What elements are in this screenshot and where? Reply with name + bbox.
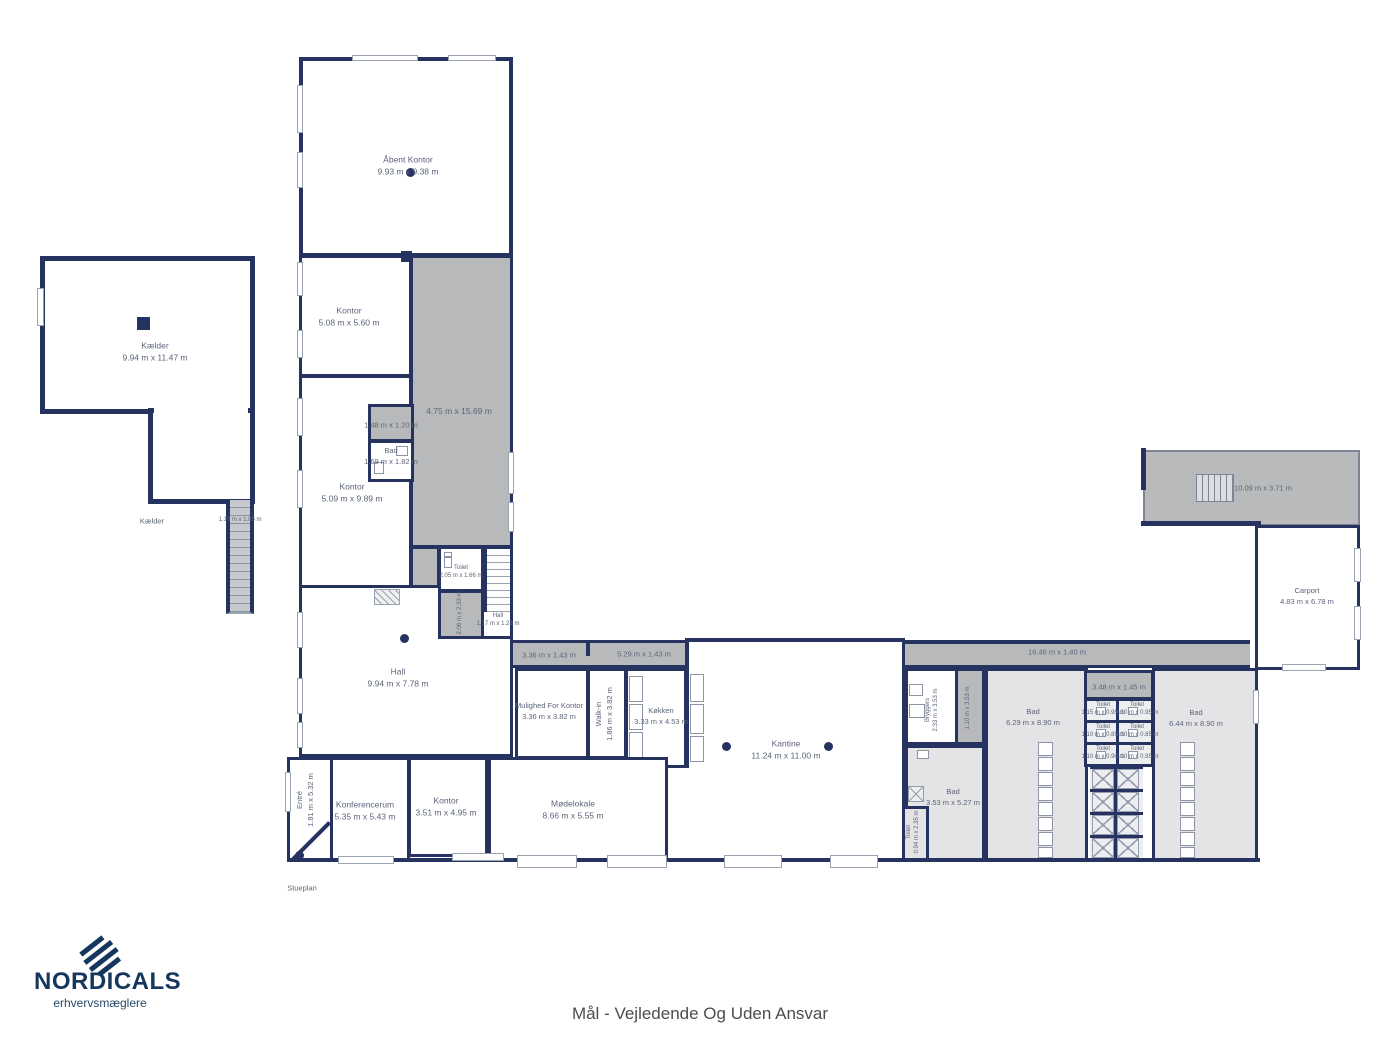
shower-icon	[1180, 757, 1195, 771]
shower-icon	[1180, 832, 1195, 846]
label-bath-small: Bad1.69 m x 1.82 m	[364, 446, 418, 468]
shower-stall-icon	[1092, 792, 1114, 812]
wall-segment	[438, 636, 513, 639]
room-name: Bad	[364, 446, 418, 457]
room-dims: 1.10 m x 0.85 m	[1115, 732, 1158, 740]
window	[452, 853, 504, 861]
label-conference: Konferencerum5.35 m x 5.43 m	[335, 799, 396, 824]
room-dims: 3.36 m x 3.82 m	[515, 712, 583, 723]
window	[1253, 690, 1259, 724]
room-dims: 9.94 m x 11.47 m	[122, 352, 187, 364]
room-dims: 3.51 m x 4.95 m	[416, 807, 477, 819]
label-corridor2: 5.29 m x 1.43 m	[617, 650, 671, 661]
shower-icon	[1038, 787, 1053, 801]
window	[297, 152, 303, 188]
label-corridor3: 16.46 m x 1.40 m	[1028, 648, 1086, 659]
shower-icon	[1038, 817, 1053, 831]
room-bath1	[985, 668, 1088, 862]
room-name: Kontor	[416, 795, 477, 807]
shower-icon	[1038, 847, 1053, 858]
window	[297, 612, 303, 648]
label-entry: Entré1.81 m x 5.32 m	[295, 773, 317, 827]
caption: Mål - Vejledende Og Uden Ansvar	[0, 1004, 1400, 1024]
room-name: Toilet	[1115, 702, 1158, 710]
label-walk-in: Walk-in1.86 m x 3.82 m	[594, 687, 616, 741]
room-name: Toilet	[439, 565, 482, 573]
shower-icon	[1038, 802, 1053, 816]
column-icon	[137, 317, 150, 330]
room-basement-lower	[148, 408, 255, 504]
label-toilet-mid: Toilet2.05 m x 1.66 m	[439, 565, 482, 581]
stairs-icon	[484, 546, 513, 612]
window	[508, 452, 514, 494]
room-dims: 3.33 m x 4.53 m	[634, 717, 688, 728]
window	[297, 85, 303, 133]
room-dims: 0.94 m x 2.35 m	[914, 810, 922, 853]
label-toilet6: Toilet1.10 m x 0.95 m	[1115, 746, 1158, 762]
window	[297, 470, 303, 508]
label-basement: Kælder9.94 m x 11.47 m	[122, 340, 187, 365]
room-dims: 5.29 m x 1.43 m	[617, 650, 671, 661]
sink-icon	[917, 750, 929, 759]
column-dot-icon	[824, 742, 833, 751]
label-room-mid: 2.06 m x 2.33 m	[457, 591, 465, 634]
shower-stall-icon	[1092, 815, 1114, 835]
room-name: Entré	[295, 773, 306, 827]
column-icon	[401, 251, 412, 262]
room-bath2	[1152, 668, 1258, 862]
label-toilet4: Toilet1.10 m x 0.85 m	[1115, 724, 1158, 740]
room-name: Hall	[476, 613, 519, 621]
label-hall-strip: 4.75 m x 15.69 m	[426, 405, 492, 417]
shower-icon	[1180, 802, 1195, 816]
shower-icon	[1038, 742, 1053, 756]
logo-wordmark: NORDICALS	[34, 968, 166, 996]
label-office-option: Mulighed For Kontor3.36 m x 3.82 m	[515, 701, 583, 723]
window	[448, 55, 496, 61]
room-dims: 3.53 m x 5.27 m	[926, 798, 980, 809]
plan-name: Stueplan	[287, 884, 317, 895]
window	[338, 856, 394, 864]
shower-stall-icon	[1117, 838, 1139, 858]
shower-stall-icon	[1117, 815, 1139, 835]
floorplan-canvas: Åbent Kontor9.93 m x 9.38 m Kontor5.08 m…	[0, 0, 1400, 1050]
shower-icon	[1180, 817, 1195, 831]
room-dims: 1.10 m x 1.85 m	[218, 517, 261, 525]
room-dims: 1.69 m x 1.82 m	[364, 457, 418, 468]
label-basement-stairs: 1.10 m x 1.85 m	[218, 517, 261, 525]
room-dims: 5.09 m x 9.89 m	[322, 493, 383, 505]
window	[508, 502, 514, 532]
label-meeting: Mødelokale8.66 m x 5.55 m	[543, 798, 604, 823]
appliance-icon	[909, 704, 925, 718]
label-bath3: Bad3.53 m x 5.27 m	[926, 787, 980, 809]
shower-stall-icon	[1092, 838, 1114, 858]
room-dims: 1.10 m x 0.95 m	[1115, 754, 1158, 762]
stueplan-label: Stueplan	[287, 884, 317, 895]
room-name: Bad	[1169, 708, 1223, 719]
room-dims: 2.05 m x 1.66 m	[439, 573, 482, 581]
wall-segment	[1084, 698, 1154, 701]
room-dims: 9.93 m x 9.38 m	[378, 166, 439, 178]
room-name: Mødelokale	[543, 798, 604, 810]
room-dims: 5.35 m x 5.43 m	[335, 811, 396, 823]
room-dims: 1.86 m x 3.82 m	[605, 687, 616, 741]
room-dims: 4.83 m x 6.78 m	[1280, 597, 1334, 608]
room-dims: 11.24 m x 11.00 m	[751, 750, 820, 762]
room-name: Kantine	[751, 738, 820, 750]
label-open-office: Åbent Kontor9.93 m x 9.38 m	[378, 154, 439, 179]
label-office3: Kontor3.51 m x 4.95 m	[416, 795, 477, 820]
room-dims: 5.08 m x 5.60 m	[319, 317, 380, 329]
wall-segment	[1141, 448, 1146, 490]
room-name: Toilet	[1115, 724, 1158, 732]
wall-segment	[1141, 521, 1261, 526]
bay-window	[517, 855, 577, 868]
room-name: Kontor	[322, 481, 383, 493]
room-dims: 2.06 m x 2.33 m	[457, 591, 465, 634]
label-toilet-top: 3.48 m x 1.45 m	[1092, 683, 1146, 694]
window	[297, 678, 303, 714]
counter-icon	[690, 674, 704, 702]
wall-segment	[586, 640, 590, 656]
stairs-icon	[1196, 474, 1234, 502]
label-basement-tag: Kælder	[140, 517, 164, 528]
label-carport: Carport4.83 m x 6.78 m	[1280, 586, 1334, 608]
label-corridor4: 1.10 m x 3.53 m	[965, 686, 973, 729]
window	[285, 772, 291, 812]
wall-segment	[1084, 742, 1154, 745]
label-store-small: 1.48 m x 1.20 m	[364, 421, 418, 432]
room-strip-sliver	[410, 546, 440, 588]
label-office1: Kontor5.08 m x 5.60 m	[319, 305, 380, 330]
label-roof: 10.09 m x 3.71 m	[1234, 484, 1292, 495]
shower-icon	[1180, 772, 1195, 786]
label-hall-main: Hall9.94 m x 7.78 m	[368, 666, 429, 691]
counter-icon	[690, 736, 704, 762]
shower-stall-icon	[1117, 769, 1139, 789]
label-bath1: Bad6.29 m x 8.90 m	[1006, 707, 1060, 729]
room-name: Toilet	[906, 810, 914, 853]
counter-icon	[629, 676, 643, 702]
window	[297, 330, 303, 358]
room-dims: 1.48 m x 1.20 m	[364, 421, 418, 432]
window	[1354, 548, 1361, 582]
label-toilet2: Toilet1.10 m x 0.95 m	[1115, 702, 1158, 718]
shower-icon	[1038, 757, 1053, 771]
appliance-icon	[909, 684, 923, 696]
room-dims: 2.33 m x 3.53 m	[933, 688, 941, 731]
room-name: Bryggers	[925, 688, 933, 731]
room-dims: 16.46 m x 1.40 m	[1028, 648, 1086, 659]
shower-icon	[1180, 742, 1195, 756]
room-name: Mulighed For Kontor	[515, 701, 583, 712]
room-name: Bad	[1006, 707, 1060, 718]
hatch-icon	[374, 589, 400, 605]
room-name: Carport	[1280, 586, 1334, 597]
room-name: Kælder	[140, 517, 164, 528]
wall-segment	[1084, 720, 1154, 723]
wall-segment	[287, 824, 290, 862]
window	[297, 398, 303, 436]
label-utility: Bryggers2.33 m x 3.53 m	[925, 688, 941, 731]
room-hall-strip	[410, 255, 513, 548]
room-name: Køkken	[634, 706, 688, 717]
bay-window	[724, 855, 782, 868]
shower-stall-icon	[1092, 769, 1114, 789]
label-corridor1: 3.36 m x 1.43 m	[522, 651, 576, 662]
room-name: Walk-in	[594, 687, 605, 741]
shower-icon	[1180, 847, 1195, 858]
wall-segment	[685, 638, 689, 768]
room-basement	[40, 256, 255, 414]
counter-icon	[690, 704, 704, 734]
label-toilet7: Toilet0.94 m x 2.35 m	[906, 810, 922, 853]
shower-stall-icon	[908, 786, 924, 802]
room-dims: 9.94 m x 7.78 m	[368, 678, 429, 690]
room-dims: 6.44 m x 8.90 m	[1169, 719, 1223, 730]
room-dims: 1.10 m x 3.53 m	[965, 686, 973, 729]
room-dims: 1.17 m x 1.26 m	[476, 621, 519, 629]
room-name: Hall	[368, 666, 429, 678]
room-dims: 8.66 m x 5.55 m	[543, 810, 604, 822]
room-dims: 1.81 m x 5.32 m	[306, 773, 317, 827]
room-dims: 3.48 m x 1.45 m	[1092, 683, 1146, 694]
room-dims: 3.36 m x 1.43 m	[522, 651, 576, 662]
window	[352, 55, 418, 61]
window	[297, 262, 303, 296]
shower-stall-icon	[1117, 792, 1139, 812]
room-name: Toilet	[1115, 746, 1158, 754]
shower-icon	[1038, 832, 1053, 846]
label-office2: Kontor5.09 m x 9.89 m	[322, 481, 383, 506]
room-name: Bad	[926, 787, 980, 798]
bay-window	[607, 855, 667, 868]
room-dims: 10.09 m x 3.71 m	[1234, 484, 1292, 495]
window	[1354, 606, 1361, 640]
room-name: Kontor	[319, 305, 380, 317]
window	[37, 288, 44, 326]
wall-opening	[154, 405, 248, 417]
label-kitchen: Køkken3.33 m x 4.53 m	[634, 706, 688, 728]
room-dims: 4.75 m x 15.69 m	[426, 405, 492, 417]
room-dims: 6.29 m x 8.90 m	[1006, 718, 1060, 729]
label-hall-small: Hall1.17 m x 1.26 m	[476, 613, 519, 629]
column-dot-icon	[722, 742, 731, 751]
room-name: Konferencerum	[335, 799, 396, 811]
label-bath2: Bad6.44 m x 8.90 m	[1169, 708, 1223, 730]
room-dims: 1.10 m x 0.95 m	[1115, 710, 1158, 718]
shower-icon	[1180, 787, 1195, 801]
window	[1282, 664, 1326, 671]
room-name: Åbent Kontor	[378, 154, 439, 166]
bay-window	[830, 855, 878, 868]
label-canteen: Kantine11.24 m x 11.00 m	[751, 738, 820, 763]
window	[297, 722, 303, 748]
shower-icon	[1038, 772, 1053, 786]
column-dot-icon	[400, 634, 409, 643]
room-name: Kælder	[122, 340, 187, 352]
